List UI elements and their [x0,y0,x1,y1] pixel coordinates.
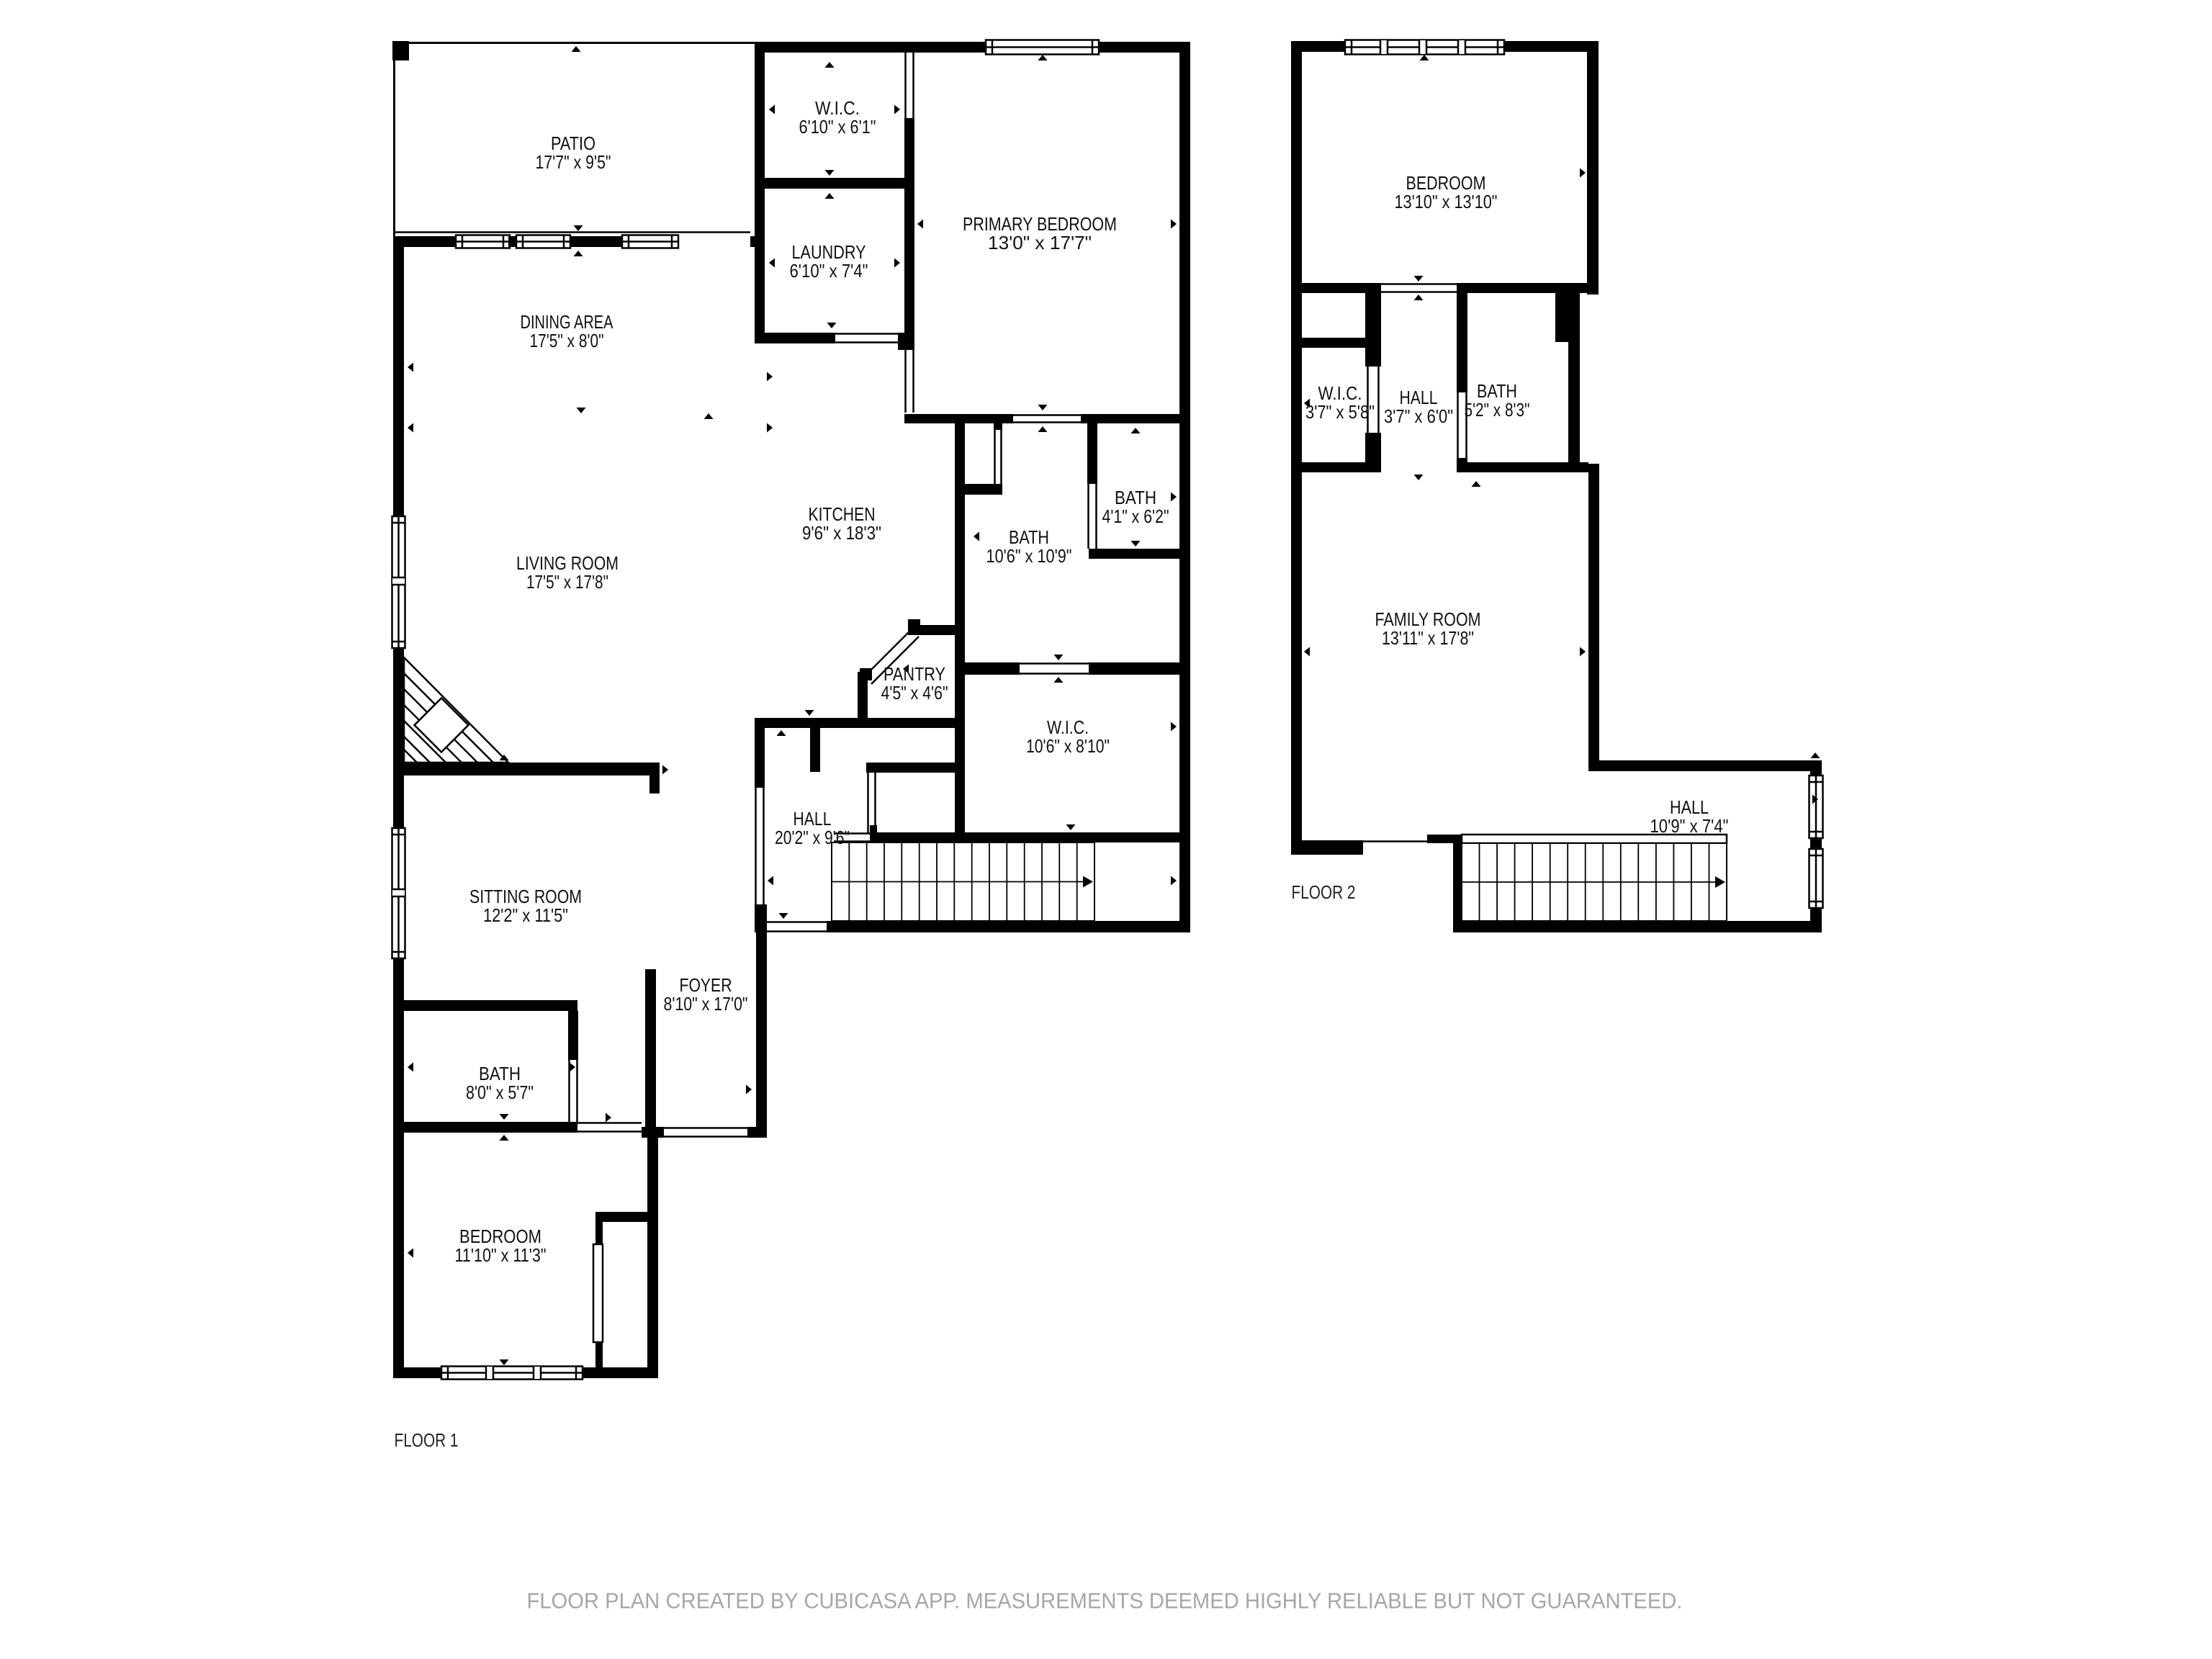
svg-text:13'11" x 17'8": 13'11" x 17'8" [1382,627,1474,649]
svg-text:11'10" x 11'3": 11'10" x 11'3" [455,1244,547,1266]
svg-text:10'9" x 7'4": 10'9" x 7'4" [1650,815,1729,837]
svg-text:10'6" x 10'9": 10'6" x 10'9" [986,545,1072,567]
svg-text:FLOOR 2: FLOOR 2 [1292,881,1356,903]
svg-text:3'7" x 6'0": 3'7" x 6'0" [1384,405,1453,427]
svg-text:17'5" x 8'0": 17'5" x 8'0" [530,330,604,351]
svg-text:3'7" x 5'8": 3'7" x 5'8" [1305,401,1375,423]
svg-text:8'0" x 5'7": 8'0" x 5'7" [466,1082,534,1103]
svg-text:4'1" x 6'2": 4'1" x 6'2" [1102,505,1169,527]
svg-text:FLOOR PLAN CREATED BY CUBICASA: FLOOR PLAN CREATED BY CUBICASA APP. MEAS… [527,1588,1683,1614]
svg-text:12'2" x 11'5": 12'2" x 11'5" [483,904,568,926]
svg-text:6'10" x 7'4": 6'10" x 7'4" [790,260,868,282]
svg-text:5'2" x 8'3": 5'2" x 8'3" [1465,399,1530,421]
svg-text:13'10" x 13'10": 13'10" x 13'10" [1395,191,1498,212]
svg-text:10'6" x 8'10": 10'6" x 8'10" [1026,735,1110,757]
svg-text:17'5" x 17'8": 17'5" x 17'8" [526,571,608,593]
svg-text:FLOOR 1: FLOOR 1 [395,1429,459,1451]
svg-text:4'5" x 4'6": 4'5" x 4'6" [881,682,948,703]
svg-text:17'7" x 9'5": 17'7" x 9'5" [536,151,611,173]
svg-text:13'0" x 17'7": 13'0" x 17'7" [988,232,1092,253]
svg-text:20'2" x 9'6": 20'2" x 9'6" [775,827,850,848]
svg-text:9'6" x 18'3": 9'6" x 18'3" [802,522,881,544]
svg-text:6'10" x 6'1": 6'10" x 6'1" [799,116,876,138]
svg-text:8'10" x 17'0": 8'10" x 17'0" [664,993,748,1015]
